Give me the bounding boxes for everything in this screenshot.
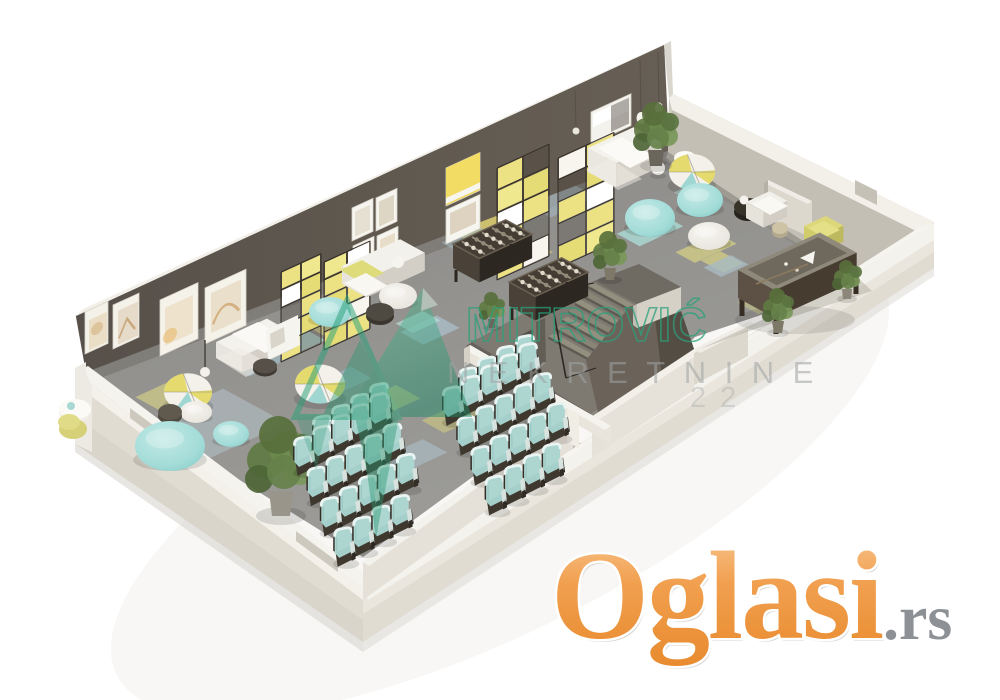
svg-text:22: 22 — [690, 382, 750, 414]
svg-text:MITROVIĆ: MITROVIĆ — [466, 297, 707, 352]
svg-text:NEKRETNINE: NEKRETNINE — [447, 355, 832, 390]
svg-text:.rs: .rs — [883, 582, 952, 653]
svg-text:Oglasi: Oglasi — [551, 527, 883, 666]
